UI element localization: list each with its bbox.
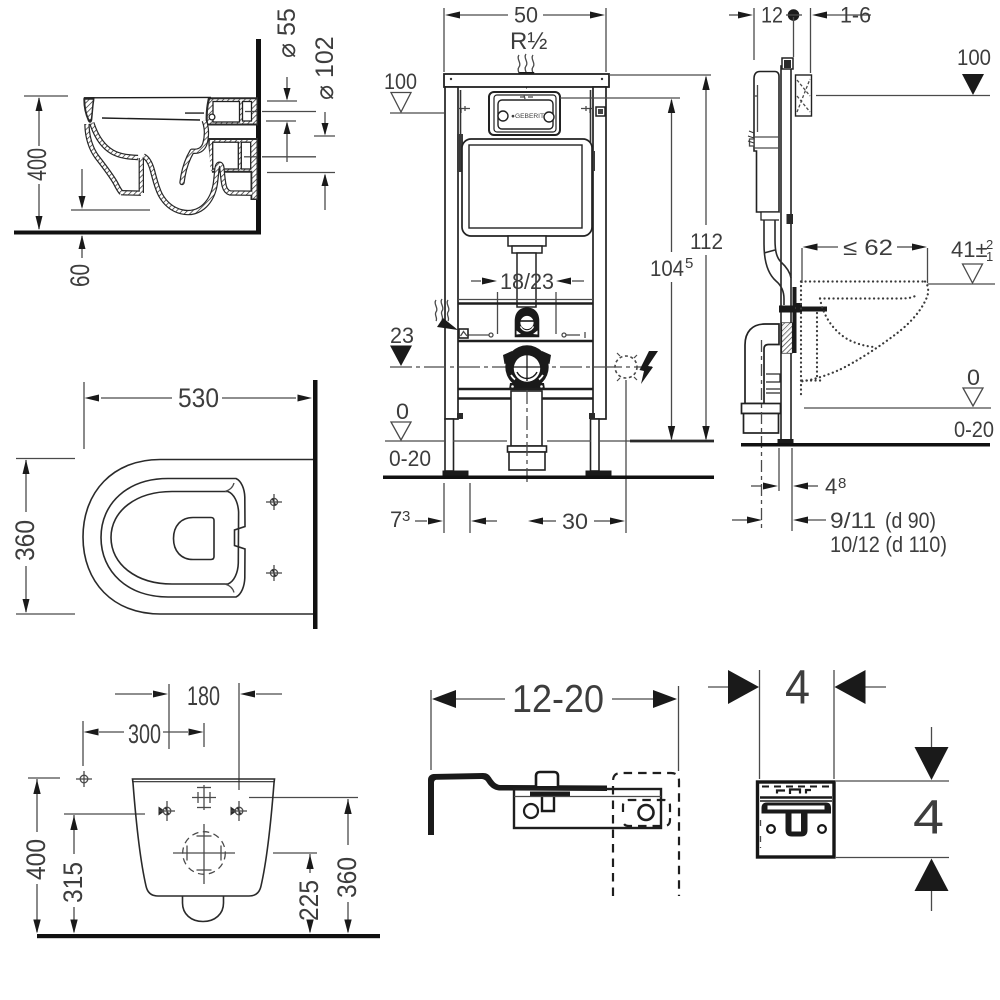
svg-text:10/12 (d 110): 10/12 (d 110) [830,532,947,557]
svg-text:530: 530 [178,383,219,413]
svg-text:0: 0 [967,365,980,390]
svg-text:⌀ 102: ⌀ 102 [311,36,339,100]
svg-text:100: 100 [957,45,991,70]
svg-text:0-20: 0-20 [954,417,994,442]
svg-text:360: 360 [332,857,362,898]
svg-text:100: 100 [384,69,417,94]
svg-text:12-20: 12-20 [512,678,604,721]
svg-text:≤ 62: ≤ 62 [843,235,893,260]
svg-text:3: 3 [402,508,410,525]
svg-text:8: 8 [838,475,846,492]
svg-text:180: 180 [187,681,220,711]
svg-text:4: 4 [913,792,944,845]
svg-text:23: 23 [390,323,414,348]
svg-text:18/23: 18/23 [500,269,554,294]
svg-text:60: 60 [65,264,95,287]
svg-text:50: 50 [514,3,538,28]
svg-text:4: 4 [825,474,837,499]
svg-text:0: 0 [396,399,409,424]
svg-text:12: 12 [761,3,783,28]
svg-text:225: 225 [294,880,324,921]
svg-text:400: 400 [21,839,51,880]
svg-text:●GEBERIT: ●GEBERIT [511,113,544,120]
svg-text:112: 112 [690,229,723,254]
svg-text:⌀ 55: ⌀ 55 [273,8,301,58]
svg-text:9/11: 9/11 [830,508,876,533]
svg-text:360: 360 [10,520,40,561]
svg-text:400: 400 [22,148,52,181]
svg-text:R½: R½ [510,28,547,55]
svg-text:7: 7 [390,507,402,532]
svg-text:1: 1 [986,249,993,264]
svg-text:41±: 41± [951,237,988,262]
svg-text:5: 5 [685,255,693,272]
svg-text:315: 315 [58,862,88,903]
svg-text:1-6: 1-6 [840,3,871,28]
svg-text:300: 300 [128,719,161,749]
svg-text:(d 90): (d 90) [885,508,936,533]
svg-text:0-20: 0-20 [389,446,431,471]
svg-text:30: 30 [562,509,588,534]
svg-text:104: 104 [650,256,684,281]
svg-text:4: 4 [785,662,810,715]
